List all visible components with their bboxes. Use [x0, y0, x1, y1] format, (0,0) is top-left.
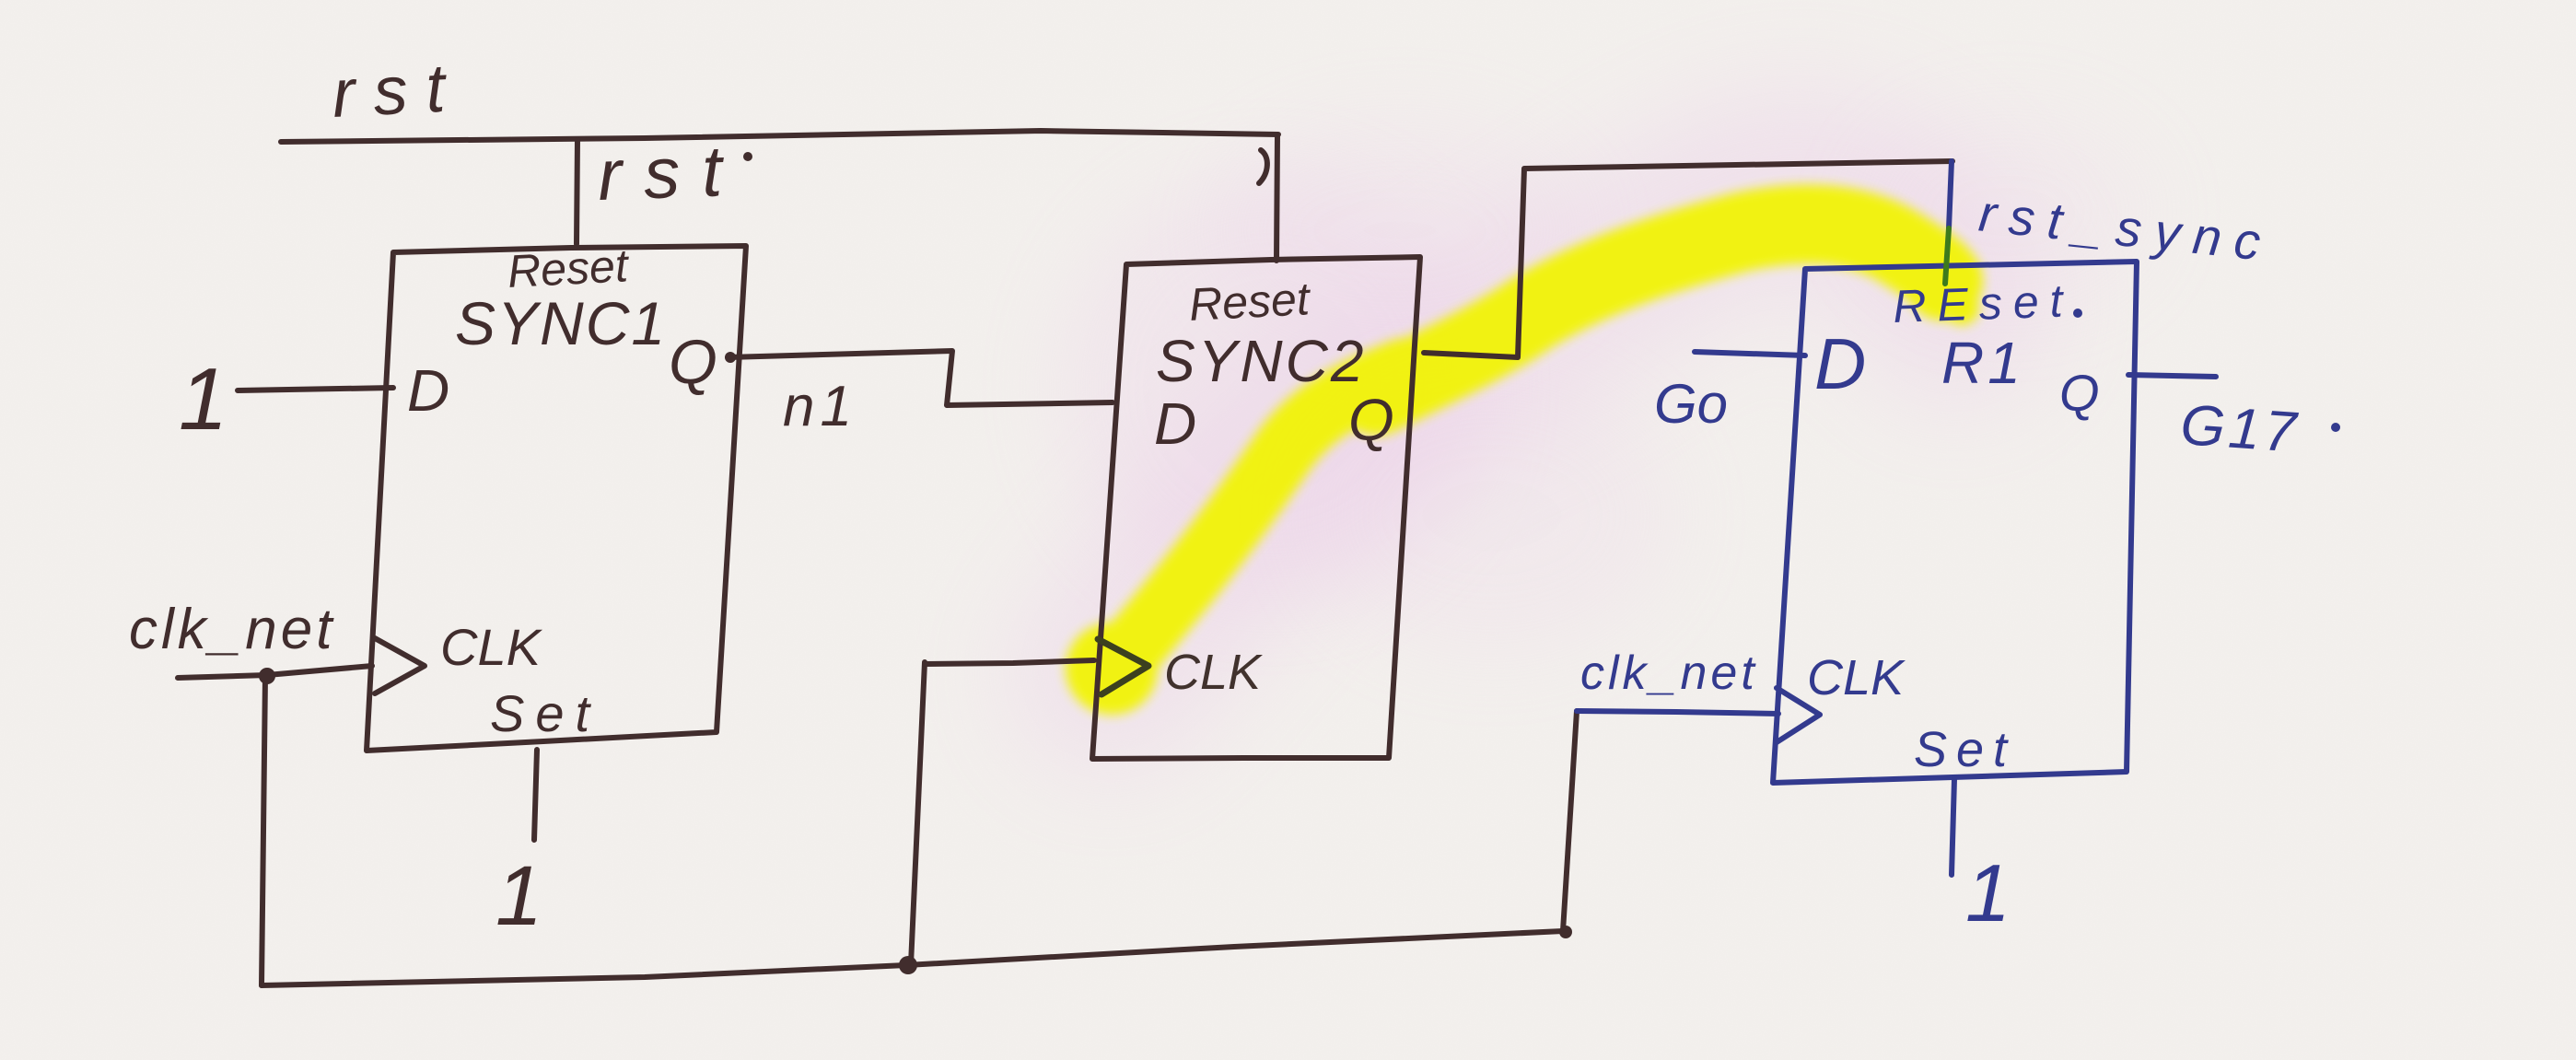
svg-text:Reset: Reset	[1188, 273, 1312, 331]
svg-text:G17: G17	[2178, 393, 2302, 465]
svg-text:D: D	[407, 357, 449, 424]
svg-text:1: 1	[495, 849, 542, 943]
svg-text:D: D	[1154, 390, 1196, 457]
svg-text:Go: Go	[1654, 373, 1728, 435]
svg-text:clk_net: clk_net	[129, 598, 335, 661]
svg-text:1: 1	[179, 350, 227, 448]
svg-text:Set: Set	[1914, 722, 2016, 777]
svg-text:CLK: CLK	[1807, 650, 1906, 705]
svg-text:D: D	[1814, 323, 1866, 404]
svg-text:rst: rst	[597, 130, 746, 215]
svg-text:R1: R1	[1941, 330, 2024, 396]
svg-text:clk_net: clk_net	[1580, 646, 1758, 700]
svg-text:1: 1	[1965, 847, 2011, 938]
svg-text:Set: Set	[490, 684, 600, 742]
svg-text:Q: Q	[2059, 364, 2100, 422]
svg-text:CLK: CLK	[440, 618, 543, 676]
svg-text:Q: Q	[1348, 387, 1394, 453]
svg-text:SYNC1: SYNC1	[455, 289, 667, 357]
svg-text:Q: Q	[669, 327, 717, 397]
svg-text:n1: n1	[783, 375, 857, 438]
svg-text:CLK: CLK	[1164, 645, 1263, 700]
svg-text:REset: REset	[1892, 274, 2074, 332]
svg-text:SYNC2: SYNC2	[1156, 328, 1366, 394]
svg-text:rst: rst	[331, 49, 465, 132]
